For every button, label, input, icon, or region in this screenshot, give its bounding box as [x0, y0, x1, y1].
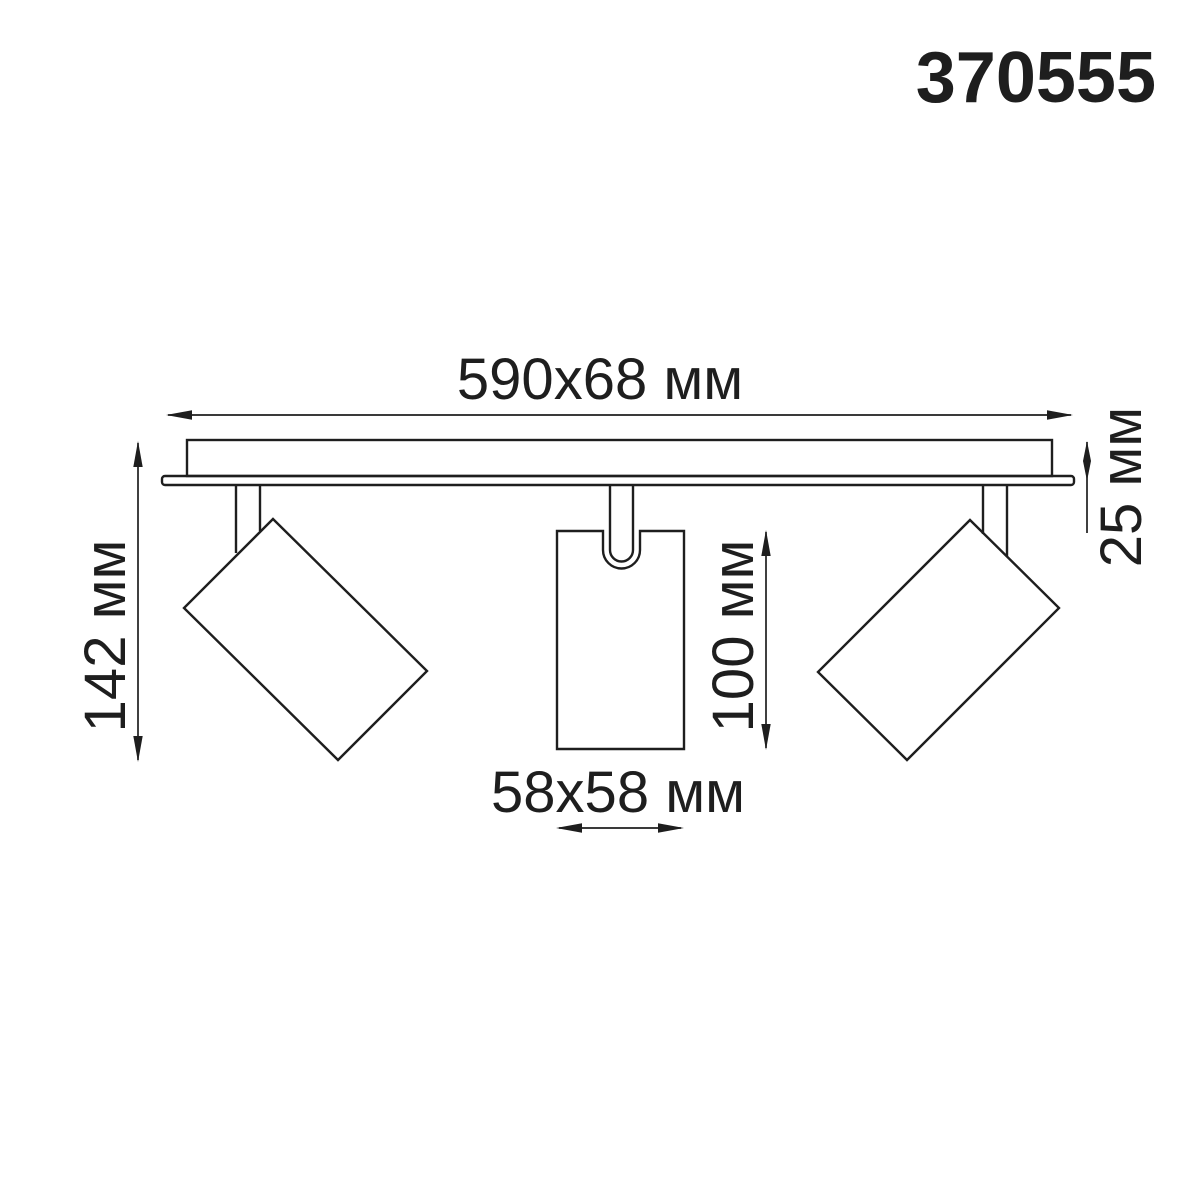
spotlight-right [818, 485, 1059, 760]
spec-drawing-page: 370555 [0, 0, 1200, 1200]
dim-label-base: 590x68 мм [457, 351, 743, 409]
dim-label-spot-height: 100 мм [705, 540, 763, 733]
mounting-plate [162, 476, 1074, 485]
spotlight-left [184, 485, 427, 760]
dim-label-overall-height: 142 мм [77, 540, 135, 733]
spotlight-center-stem-cap [610, 550, 633, 562]
dim-label-base-thickness: 25 мм [1093, 407, 1151, 567]
fixture-line-drawing [0, 0, 1200, 1200]
track-bar [187, 440, 1052, 476]
spotlight-right-body [818, 520, 1059, 760]
spotlight-center-body [557, 531, 684, 749]
spotlight-left-body [184, 519, 427, 760]
spotlight-center [557, 485, 684, 749]
dim-label-spot-size: 58x58 мм [491, 764, 745, 822]
